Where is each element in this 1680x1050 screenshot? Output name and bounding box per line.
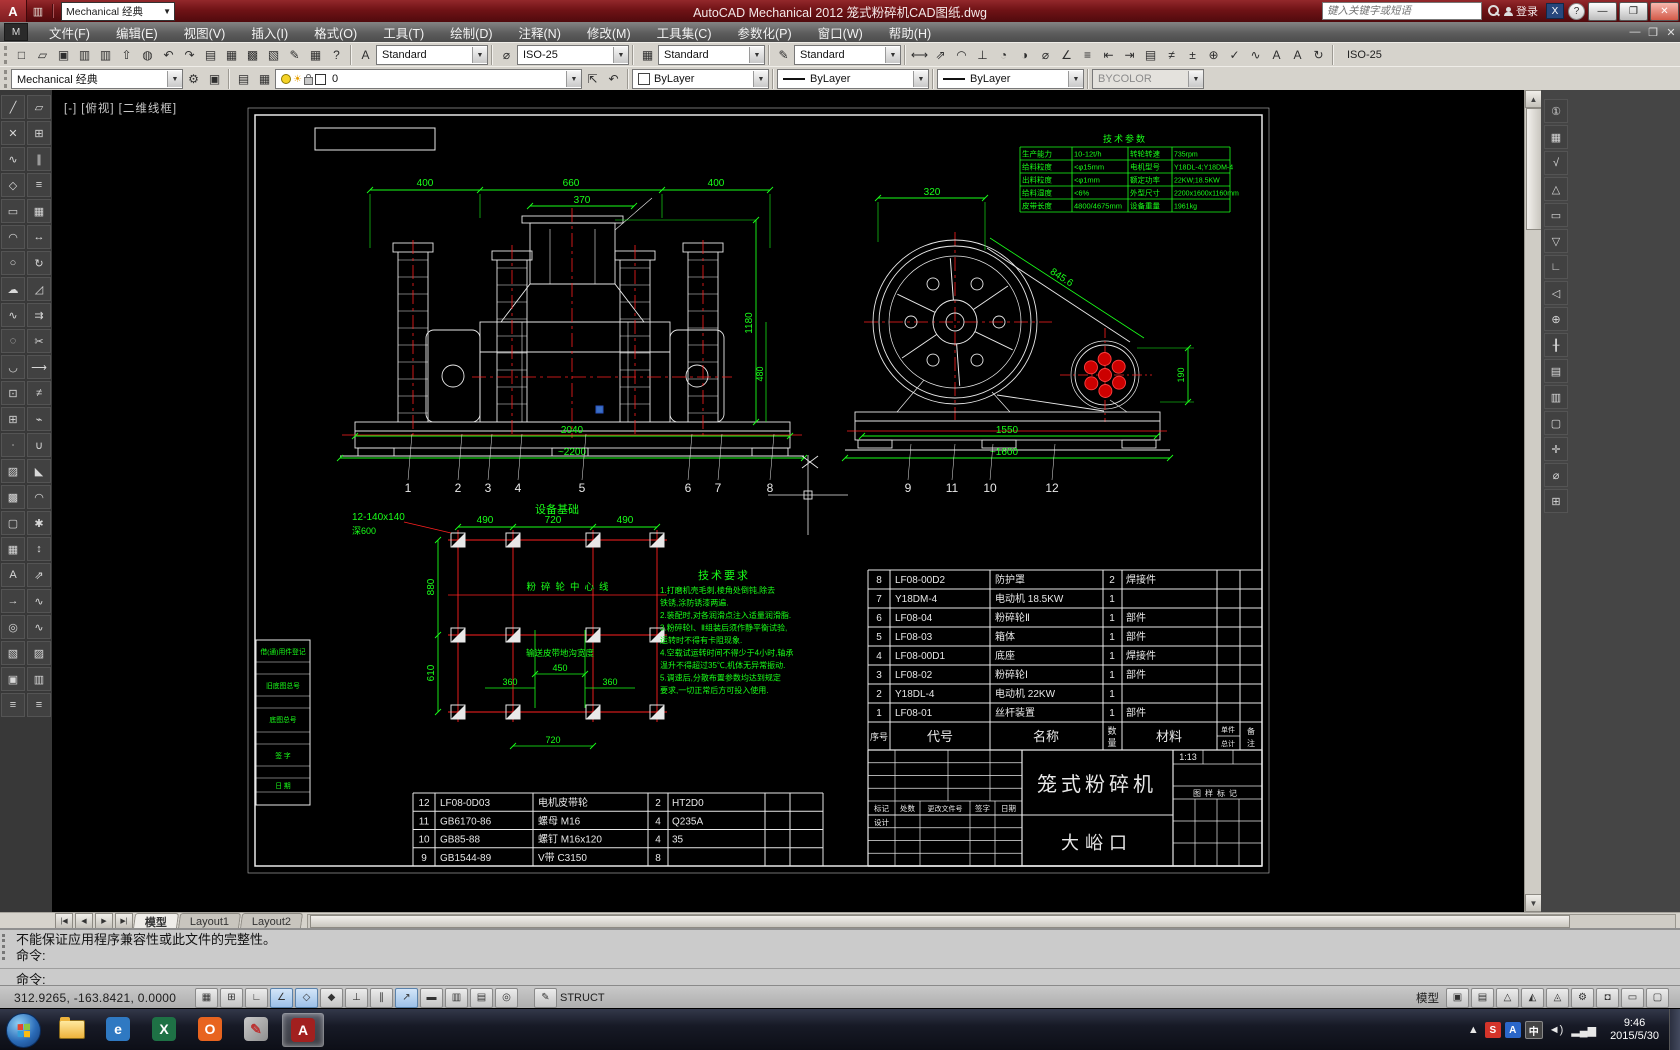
svg-text:~1600: ~1600 (990, 447, 1019, 458)
help-icon[interactable]: ? (1568, 3, 1585, 20)
divider (1087, 69, 1089, 89)
svg-text:1: 1 (1109, 708, 1115, 719)
menu-item[interactable]: 绘制(D) (437, 22, 505, 42)
svg-text:22KW;18.5KW: 22KW;18.5KW (1174, 178, 1220, 185)
restore-button[interactable]: ❐ (1619, 2, 1648, 21)
hatch-icon[interactable]: ▨ (1, 459, 25, 483)
svg-text:7: 7 (876, 594, 882, 605)
divider (228, 69, 230, 89)
svg-text:12-140x140: 12-140x140 (352, 512, 405, 523)
diameter-icon[interactable]: ⌀ (1035, 45, 1056, 65)
first-tab-button[interactable]: |◀ (55, 913, 73, 929)
datum-identifier-icon[interactable]: ▽ (1544, 229, 1568, 253)
workspace-save-icon[interactable]: ▣ (204, 69, 225, 89)
color-combo[interactable]: ByLayer▼ (632, 69, 769, 89)
close-button[interactable]: ✕ (1650, 2, 1679, 21)
dynamic-input-toggle[interactable]: ↗ (395, 988, 418, 1008)
boundary-icon[interactable]: ▣ (1, 667, 25, 691)
menu-item[interactable]: 修改(M) (574, 22, 644, 42)
menu-item[interactable]: 注释(N) (506, 22, 574, 42)
mleader-style-combo[interactable]: Standard▼ (794, 45, 901, 65)
sogou-input-icon[interactable]: S (1485, 1022, 1501, 1038)
insert-block-icon[interactable]: ⊡ (1, 381, 25, 405)
menu-item[interactable]: 工具集(C) (644, 22, 725, 42)
fillet-icon[interactable]: ◠ (27, 485, 51, 509)
performance-icon[interactable]: ▭ (1621, 988, 1644, 1008)
user-icon (1504, 7, 1513, 16)
quickcalc-icon[interactable]: ▦ (305, 45, 326, 65)
svg-text:设备重量: 设备重量 (1130, 201, 1160, 211)
doc-close-button[interactable]: ✕ (1662, 26, 1680, 39)
command-window-grip[interactable] (2, 934, 10, 960)
svg-text:要求,一切正常后方可投入使用.: 要求,一切正常后方可投入使用. (660, 685, 768, 695)
svg-text:签 字: 签 字 (275, 751, 291, 760)
hole-chart-icon[interactable]: ▤ (1544, 359, 1568, 383)
svg-text:490: 490 (617, 515, 634, 526)
search-icon[interactable] (1486, 4, 1500, 18)
document-window-controls: — ❐ ✕ (1626, 26, 1680, 39)
svg-text:1: 1 (1109, 594, 1115, 605)
layers-properties-toolbar: Mechanical 经典▼ ⚙▣ ▤▦ ☀ 0 ▼ ⇱↶ ByLayer▼ B… (0, 66, 1680, 92)
svg-text:Y18DL-4: Y18DL-4 (895, 689, 935, 700)
parts-list-icon[interactable]: ▦ (1544, 125, 1568, 149)
clock-date: 2015/5/30 (1610, 1030, 1659, 1043)
quick-properties-toggle[interactable]: ▤ (470, 988, 493, 1008)
command-history: 不能保证应用程序兼容性或此文件的完整性。 命令: (0, 930, 1680, 969)
balloon-icon[interactable]: ① (1544, 99, 1568, 123)
text-style-combo[interactable]: Standard▼ (376, 45, 488, 65)
viewport-control[interactable]: [俯视] (81, 103, 114, 115)
centerline-cross-icon[interactable]: ⊕ (1544, 307, 1568, 331)
angular-icon[interactable]: ∠ (1056, 45, 1077, 65)
toolbar-lock-icon[interactable]: ◘ (1596, 988, 1619, 1008)
status-right-icons: ▣▤△◭◬⚙◘▭▢ (1445, 988, 1670, 1008)
exchange-icon[interactable]: X (1546, 3, 1564, 19)
linetype-combo[interactable]: ByLayer▼ (777, 69, 929, 89)
ordinate-icon[interactable]: ⊥ (972, 45, 993, 65)
divide-icon[interactable]: ≡ (1, 693, 25, 717)
svg-text:8: 8 (876, 575, 882, 586)
jogged-linear-icon[interactable]: ∿ (1245, 45, 1266, 65)
feature-control-frame-icon[interactable]: ▭ (1544, 203, 1568, 227)
lineweight-display-toggle[interactable]: ▬ (420, 988, 443, 1008)
grid-display-toggle[interactable]: ⊞ (220, 988, 243, 1008)
dimension-text-edit-icon[interactable]: A (1287, 45, 1308, 65)
svg-text:材料: 材料 (1156, 729, 1182, 744)
horizontal-scrollbar[interactable] (307, 914, 1676, 929)
viewport-control[interactable]: [-] (64, 103, 77, 115)
make-object-layer-current-icon[interactable]: ⇱ (582, 69, 603, 89)
dimension-space-icon[interactable]: ▤ (1140, 45, 1161, 65)
layer-lock-icon[interactable] (304, 77, 313, 85)
extend-icon[interactable]: ⟶ (27, 355, 51, 379)
donut-icon[interactable]: ◎ (1, 615, 25, 639)
tab-model[interactable]: 模型 (133, 913, 179, 929)
lengthen-icon[interactable]: ↕ (27, 537, 51, 561)
svg-text:输送皮带地沟宽度: 输送皮带地沟宽度 (526, 648, 595, 658)
quick-dimension-icon[interactable]: ≡ (1077, 45, 1098, 65)
workspace-settings-icon[interactable]: ⚙ (183, 69, 204, 89)
menu-item[interactable]: 编辑(E) (103, 22, 171, 42)
selection-cycling-toggle[interactable]: ◎ (495, 988, 518, 1008)
taskbar-app-excel[interactable]: X (144, 1013, 184, 1045)
show-desktop-button[interactable] (1669, 1009, 1680, 1050)
mleader-style-icon[interactable]: ✎ (773, 45, 794, 65)
viewport-controls[interactable]: [-][俯视][二维线框] (64, 100, 181, 116)
svg-text:粉碎轮Ⅰ: 粉碎轮Ⅰ (995, 668, 1028, 681)
construction-line-icon[interactable]: ✕ (1, 121, 25, 145)
object-snap-tracking-toggle[interactable]: ⊥ (345, 988, 368, 1008)
sheet-set-manager-icon[interactable]: ▧ (263, 45, 284, 65)
svg-text:设备基础: 设备基础 (535, 502, 579, 516)
svg-text:660: 660 (563, 178, 580, 189)
title-bar: A □▱▣▤▥↶▾↷✦ Mechanical 经典 ▼ AutoCAD Mech… (0, 0, 1680, 22)
array-icon[interactable]: ▦ (27, 199, 51, 223)
snap-mode-toggle[interactable]: ▦ (195, 988, 218, 1008)
revision-cloud-icon[interactable]: ☁ (1, 277, 25, 301)
tab-layout2[interactable]: Layout2 (240, 913, 303, 929)
wipeout-icon[interactable]: ▧ (1, 641, 25, 665)
etransmit-icon[interactable]: ◍ (137, 45, 158, 65)
status-bar: 312.9265, -163.8421, 0.0000 ▦⊞∟∠◇◆⊥∥↗▬▥▤… (0, 985, 1680, 1009)
standard-parts-icon[interactable]: ⊞ (1544, 489, 1568, 513)
taskbar-app-app-orange[interactable]: O (190, 1013, 230, 1045)
svg-text:设计: 设计 (874, 817, 889, 827)
svg-text:610: 610 (426, 664, 437, 681)
line-icon[interactable]: ╱ (1, 95, 25, 119)
new-drawing-icon[interactable]: □ (11, 45, 32, 65)
properties-palette-icon[interactable]: ▤ (200, 45, 221, 65)
dimension-break-icon[interactable]: ≠ (1161, 45, 1182, 65)
svg-text:笼式粉碎机: 笼式粉碎机 (1037, 773, 1157, 796)
make-block-icon[interactable]: ⊞ (1, 407, 25, 431)
rectangle-icon[interactable]: ▭ (1, 199, 25, 223)
menu-item[interactable]: 参数化(P) (724, 22, 804, 42)
gradient-icon[interactable]: ▩ (1, 485, 25, 509)
svg-text:代号: 代号 (927, 729, 953, 744)
taskbar-app-autocad[interactable]: A (282, 1013, 324, 1047)
speaker-icon[interactable]: ◄) (1549, 1024, 1564, 1036)
layer-properties-manager-icon[interactable]: ▤ (233, 69, 254, 89)
arc-length-icon[interactable]: ◠ (951, 45, 972, 65)
dim-style-value: ISO-25 (523, 49, 558, 61)
chamfer-icon[interactable]: ◣ (27, 459, 51, 483)
inspection-icon[interactable]: ✓ (1224, 45, 1245, 65)
svg-text:数: 数 (1107, 725, 1116, 736)
tool-palettes-icon[interactable]: ▩ (242, 45, 263, 65)
svg-text:2.装配时,对各润滑点注入适量润滑脂.: 2.装配时,对各润滑点注入适量润滑脂. (660, 610, 791, 620)
svg-text:35: 35 (672, 835, 684, 846)
svg-text:HT2D0: HT2D0 (672, 798, 704, 809)
system-tray: ▲ S A 中 ◄) ▂▄▆ 9:46 2015/5/30 (1464, 1009, 1680, 1050)
explode-icon[interactable]: ✱ (27, 511, 51, 535)
edit-hatch-icon[interactable]: ▨ (27, 641, 51, 665)
dim-style-combo[interactable]: ISO-25▼ (517, 45, 629, 65)
help-icon[interactable]: ? (326, 45, 347, 65)
lineweight-combo[interactable]: ByLayer▼ (937, 69, 1084, 89)
scroll-down-arrow[interactable]: ▼ (1525, 894, 1542, 912)
table-style-combo[interactable]: Standard▼ (658, 45, 765, 65)
search-input[interactable] (1322, 2, 1482, 20)
svg-text:360: 360 (502, 677, 517, 687)
autocad-logo-icon[interactable]: A (0, 0, 27, 22)
match-properties-icon[interactable]: ▥ (27, 667, 51, 691)
plot-icon[interactable]: ▥ (74, 45, 95, 65)
quick-view-drawings-icon[interactable]: ▤ (1471, 988, 1494, 1008)
right-toolbar: ①▦√△▭▽∟◁⊕╂▤▥▢✛⌀⊞ (1541, 90, 1680, 912)
publish-icon[interactable]: ⇧ (116, 45, 137, 65)
arc-icon[interactable]: ◠ (1, 225, 25, 249)
standard-toolbar-icons: □▱▣▥▥⇧◍↶↷▤▦▩▧✎▦? (11, 45, 347, 65)
menu-item[interactable]: 窗口(W) (805, 22, 876, 42)
table-icon[interactable]: ▦ (1, 537, 25, 561)
open-icon[interactable]: ▱ (32, 45, 53, 65)
surface-texture-icon[interactable]: √ (1544, 151, 1568, 175)
svg-text:出料粒度: 出料粒度 (1022, 175, 1052, 185)
layer-combo[interactable]: ☀ 0 ▼ (275, 69, 582, 89)
svg-text:8: 8 (655, 853, 661, 864)
join-icon[interactable]: ∪ (27, 433, 51, 457)
svg-text:3.粉碎轮Ⅰ、Ⅱ组装后须作静平衡试验,: 3.粉碎轮Ⅰ、Ⅱ组装后须作静平衡试验, (660, 623, 787, 633)
doc-restore-button[interactable]: ❐ (1644, 26, 1662, 39)
dimension-update-icon[interactable]: ↻ (1308, 45, 1329, 65)
ortho-mode-toggle[interactable]: ∟ (245, 988, 268, 1008)
doc-minimize-button[interactable]: — (1626, 26, 1644, 38)
scale-icon[interactable]: ◿ (27, 277, 51, 301)
object-snap-3d-toggle[interactable]: ◆ (320, 988, 343, 1008)
screw-connection-icon[interactable]: ✛ (1544, 437, 1568, 461)
ellipse-icon[interactable]: ◌ (1, 329, 25, 353)
edit-spline-icon[interactable]: ∿ (27, 615, 51, 639)
last-tab-button[interactable]: ▶| (115, 913, 133, 929)
markup-set-manager-icon[interactable]: ✎ (284, 45, 305, 65)
linetype-value: ByLayer (810, 73, 850, 85)
taskbar-app-paint[interactable]: ✎ (236, 1013, 276, 1045)
aligned-dimension-icon[interactable]: ⇗ (930, 45, 951, 65)
shaft-generator-icon[interactable]: ⌀ (1544, 463, 1568, 487)
color-swatch (638, 73, 650, 85)
plot-preview-icon[interactable]: ▥ (95, 45, 116, 65)
svg-text:1961kg: 1961kg (1174, 204, 1197, 211)
dimension-edit-icon[interactable]: A (1266, 45, 1287, 65)
pencil-icon[interactable]: ✎ (534, 988, 557, 1008)
svg-text:12: 12 (418, 798, 430, 809)
network-icon[interactable]: ▂▄▆ (1571, 1024, 1596, 1037)
next-tab-button[interactable]: ▶ (95, 913, 113, 929)
trim-icon[interactable]: ✂ (27, 329, 51, 353)
annotation-scale-icon[interactable]: △ (1496, 988, 1519, 1008)
plot-icon[interactable]: ▥ (28, 2, 48, 20)
svg-text:粉碎轮中心线: 粉碎轮中心线 (526, 581, 613, 593)
prev-tab-button[interactable]: ◀ (75, 913, 93, 929)
taskbar-app-explorer[interactable] (52, 1013, 92, 1045)
menu-items: 文件(F)编辑(E)视图(V)插入(I)格式(O)工具(T)绘制(D)注释(N)… (36, 22, 944, 42)
chevron-down-icon: ▼ (613, 47, 628, 63)
fits-list-icon[interactable]: ▥ (1544, 385, 1568, 409)
rotate-icon[interactable]: ↻ (27, 251, 51, 275)
text-style-icon[interactable]: A (355, 45, 376, 65)
taper-symbol-icon[interactable]: ◁ (1544, 281, 1568, 305)
title-border-icon[interactable]: ▢ (1544, 411, 1568, 435)
svg-text:480: 480 (755, 366, 765, 381)
break-at-point-icon[interactable]: ≠ (27, 381, 51, 405)
polygon-icon[interactable]: ◇ (1, 173, 25, 197)
svg-text:旧底图总号: 旧底图总号 (266, 681, 300, 690)
vertical-scrollbar[interactable]: ▲ ▼ (1524, 90, 1542, 912)
ellipse-arc-icon[interactable]: ◡ (1, 355, 25, 379)
svg-text:电动机 18.5KW: 电动机 18.5KW (995, 592, 1064, 605)
svg-text:LF08-03: LF08-03 (895, 632, 933, 643)
linetype-sample (783, 78, 805, 80)
align-icon[interactable]: ⇗ (27, 563, 51, 587)
svg-text:5: 5 (579, 481, 586, 495)
taskbar-clock[interactable]: 9:46 2015/5/30 (1610, 1017, 1659, 1043)
linear-dimension-icon[interactable]: ⟷ (909, 45, 930, 65)
workspace-switching-icon[interactable]: ⚙ (1571, 988, 1594, 1008)
redo-icon[interactable]: ↷ (179, 45, 200, 65)
quick-view-layouts-icon[interactable]: ▣ (1446, 988, 1469, 1008)
spline-icon[interactable]: ∿ (1, 303, 25, 327)
svg-text:焊接件: 焊接件 (1126, 649, 1156, 662)
viewport-control[interactable]: [二维线框] (119, 103, 177, 115)
menu-item[interactable]: 插入(I) (238, 22, 301, 42)
offset-icon[interactable]: ≡ (27, 173, 51, 197)
chevron-down-icon: ▼ (885, 47, 900, 63)
menu-item[interactable]: 工具(T) (370, 22, 437, 42)
svg-text:845.6: 845.6 (1048, 266, 1075, 289)
mechanical-icon[interactable]: M (4, 23, 28, 41)
clean-screen-icon[interactable]: ▢ (1646, 988, 1669, 1008)
svg-text:11: 11 (946, 481, 959, 495)
autoscale-icon[interactable]: ◬ (1546, 988, 1569, 1008)
svg-text:焊接件: 焊接件 (1126, 573, 1156, 586)
edge-symbol-icon[interactable]: ∟ (1544, 255, 1568, 279)
toolbar-grip[interactable] (4, 46, 7, 64)
toolbar-grip[interactable] (4, 70, 7, 88)
save-icon[interactable]: ▣ (53, 45, 74, 65)
polar-tracking-toggle[interactable]: ∠ (270, 988, 293, 1008)
layer-on-icon[interactable] (281, 74, 291, 84)
workspace-value: Mechanical 经典 (17, 71, 98, 87)
erase-icon[interactable]: ▱ (27, 95, 51, 119)
undo-icon[interactable]: ↶ (158, 45, 179, 65)
ray-icon[interactable]: → (1, 589, 25, 613)
menu-item[interactable]: 文件(F) (36, 22, 103, 42)
command-window[interactable]: 不能保证应用程序兼容性或此文件的完整性。 命令: 命令: (0, 928, 1680, 987)
workspace-combo[interactable]: Mechanical 经典 ▼ (61, 2, 175, 21)
layer-states-icon[interactable]: ▦ (254, 69, 275, 89)
multiline-text-icon[interactable]: A (1, 563, 25, 587)
continue-dimension-icon[interactable]: ⇥ (1119, 45, 1140, 65)
design-center-icon[interactable]: ▦ (221, 45, 242, 65)
svg-text:400: 400 (708, 178, 725, 189)
svg-text:LF08-01: LF08-01 (895, 708, 933, 719)
modify-toolbar: ▱⊞∥≡▦↔↻◿⇉✂⟶≠⌁∪◣◠✱↕⇗∿∿▨▥≡ (26, 90, 52, 912)
signin-link[interactable]: 登录 (1516, 3, 1538, 19)
measure-icon[interactable]: ≡ (27, 693, 51, 717)
taskbar-app-browser[interactable]: e (98, 1013, 138, 1045)
svg-text:外型尺寸: 外型尺寸 (1130, 188, 1160, 198)
svg-text:1: 1 (1109, 670, 1115, 681)
stretch-icon[interactable]: ⇉ (27, 303, 51, 327)
object-snap-toggle[interactable]: ◇ (295, 988, 318, 1008)
svg-text:~2200: ~2200 (558, 447, 587, 458)
workspace-icons: ⚙▣ (183, 69, 225, 89)
baseline-dimension-icon[interactable]: ⇤ (1098, 45, 1119, 65)
svg-text:底图总号: 底图总号 (269, 715, 296, 724)
svg-text:粉碎轮Ⅱ: 粉碎轮Ⅱ (995, 611, 1030, 624)
workspace-combo-2[interactable]: Mechanical 经典▼ (11, 69, 183, 89)
mirror-icon[interactable]: ∥ (27, 147, 51, 171)
svg-text:880: 880 (426, 578, 437, 595)
layout-tab-bar: |◀ ◀ ▶ ▶| 模型 Layout1 Layout2 (0, 912, 1680, 929)
weld-symbol-icon[interactable]: △ (1544, 177, 1568, 201)
horizontal-scroll-thumb[interactable] (310, 915, 1569, 928)
break-icon[interactable]: ⌁ (27, 407, 51, 431)
svg-text:7: 7 (715, 481, 722, 495)
svg-text:2: 2 (876, 689, 882, 700)
table-style-icon[interactable]: ▦ (637, 45, 658, 65)
vertical-scroll-thumb[interactable] (1526, 108, 1542, 230)
menu-item[interactable]: 视图(V) (171, 22, 239, 42)
cad-drawing: 40066040037011804802040~2200123456783208… (52, 90, 1524, 912)
current-dim-style-label: ISO-25 (1337, 49, 1392, 61)
minimize-button[interactable]: — (1588, 2, 1617, 21)
model-space-toggle[interactable]: 模型 (1410, 990, 1445, 1006)
circle-icon[interactable]: ○ (1, 251, 25, 275)
layer-color-swatch (315, 74, 326, 85)
centerline-icon[interactable]: ╂ (1544, 333, 1568, 357)
annotation-visibility-icon[interactable]: ◭ (1521, 988, 1544, 1008)
svg-text:LF08-02: LF08-02 (895, 670, 933, 681)
menu-item[interactable]: 帮助(H) (876, 22, 944, 42)
scroll-up-arrow[interactable]: ▲ (1525, 90, 1542, 108)
svg-text:给料粒度: 给料粒度 (1022, 162, 1052, 172)
svg-text:370: 370 (574, 195, 591, 206)
table-style-value: Standard (664, 49, 709, 61)
start-button[interactable] (6, 1013, 41, 1048)
region-icon[interactable]: ▢ (1, 511, 25, 535)
tab-layout1[interactable]: Layout1 (178, 913, 241, 929)
chevron-down-icon: ▼ (1068, 71, 1083, 87)
edit-polyline-icon[interactable]: ∿ (27, 589, 51, 613)
svg-text:4: 4 (655, 816, 661, 827)
drawing-canvas[interactable]: 40066040037011804802040~2200123456783208… (52, 90, 1524, 912)
input-a-icon[interactable]: A (1505, 1022, 1521, 1038)
point-icon[interactable]: ∙ (1, 433, 25, 457)
layer-previous-icon[interactable]: ↶ (603, 69, 624, 89)
mleader-style-value: Standard (800, 49, 845, 61)
dynamic-ucs-toggle[interactable]: ∥ (370, 988, 393, 1008)
text-style-value: Standard (382, 49, 427, 61)
move-icon[interactable]: ↔ (27, 225, 51, 249)
dim-style-icon[interactable]: ⌀ (496, 45, 517, 65)
tolerance-icon[interactable]: ± (1182, 45, 1203, 65)
transparency-toggle[interactable]: ▥ (445, 988, 468, 1008)
menu-item[interactable]: 格式(O) (301, 22, 370, 42)
hidden-icons-arrow[interactable]: ▲ (1468, 1024, 1479, 1036)
center-mark-icon[interactable]: ⊕ (1203, 45, 1224, 65)
jogged-icon[interactable]: ◑ (1014, 45, 1035, 65)
polyline-icon[interactable]: ∿ (1, 147, 25, 171)
svg-text:温升不得超过35℃,机体无异常振动.: 温升不得超过35℃,机体无异常振动. (660, 660, 785, 670)
svg-text:螺母 M16: 螺母 M16 (538, 815, 581, 827)
radius-icon[interactable]: ◔ (993, 45, 1014, 65)
copy-icon[interactable]: ⊞ (27, 121, 51, 145)
ime-cn-icon[interactable]: 中 (1525, 1021, 1543, 1039)
svg-text:3: 3 (876, 670, 882, 681)
layer-freeze-icon[interactable]: ☀ (293, 74, 302, 85)
